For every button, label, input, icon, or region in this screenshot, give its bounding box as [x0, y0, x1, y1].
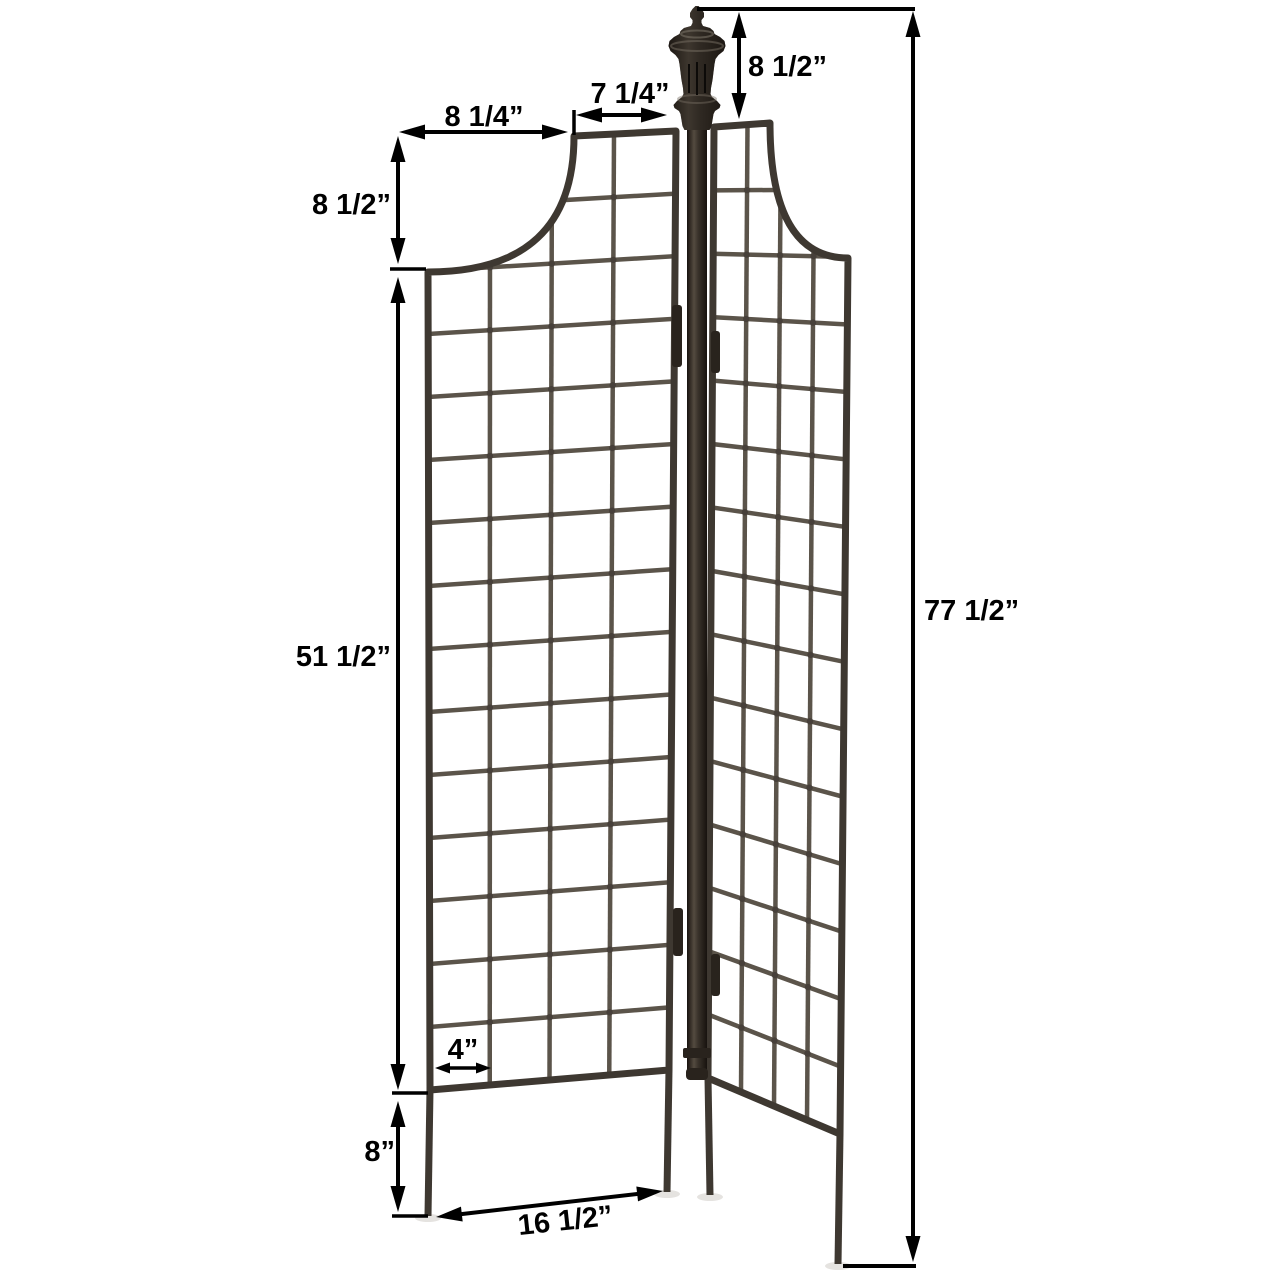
dim-label-scoop-width: 8 1/4” [445, 101, 524, 133]
trellis-dimension-diagram: 8 1/2” 7 1/4” 8 1/4” 8 1/2” 51 1/2” 77 1… [0, 0, 1280, 1280]
dim-label-finial-height: 8 1/2” [748, 51, 827, 83]
dim-label-panel-top-width: 7 1/4” [591, 78, 670, 110]
left-panel-grid [423, 116, 680, 1104]
finial [669, 6, 726, 130]
dim-label-grid-square: 4” [448, 1034, 479, 1066]
right-panel-shadows [697, 1193, 851, 1270]
dim-label-scoop-height: 8 1/2” [312, 189, 391, 221]
diagram-canvas: 8 1/2” 7 1/4” 8 1/4” 8 1/2” 51 1/2” 77 1… [0, 0, 1280, 1280]
dim-finial-height [732, 12, 747, 119]
dim-grid-height [391, 277, 406, 1090]
dimension-labels: 8 1/2” 7 1/4” 8 1/4” 8 1/2” 51 1/2” 77 1… [296, 51, 1019, 1242]
dim-scoop-height [391, 136, 406, 264]
dim-label-leg-height: 8” [364, 1136, 395, 1168]
dim-total-height [906, 11, 921, 1262]
dim-label-total-height: 77 1/2” [924, 595, 1019, 627]
drawing-layer [390, 6, 921, 1270]
dim-label-grid-height: 51 1/2” [296, 641, 391, 673]
